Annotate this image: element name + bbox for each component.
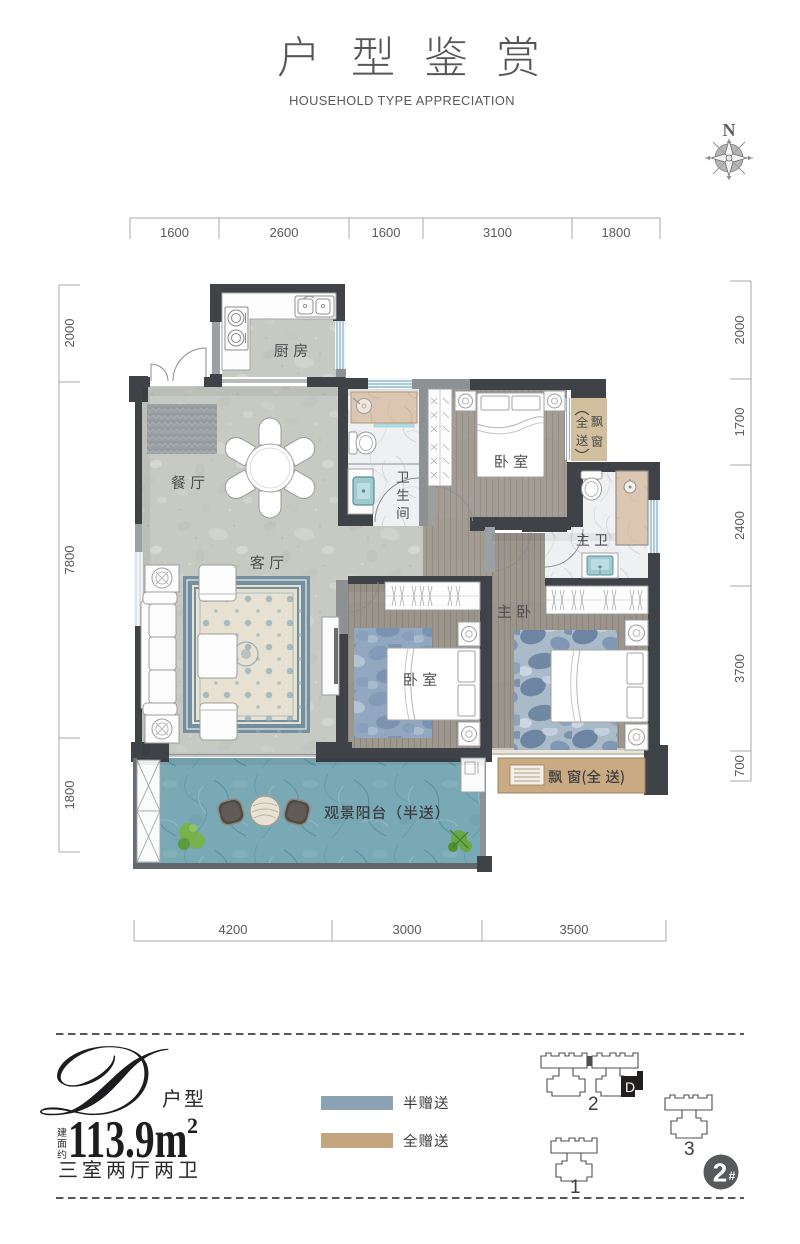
svg-text:#: # <box>729 1169 736 1183</box>
svg-text:1800: 1800 <box>602 225 631 240</box>
svg-text:700: 700 <box>732 755 747 777</box>
svg-text:3: 3 <box>684 1139 695 1160</box>
svg-text:2: 2 <box>713 1158 727 1188</box>
svg-text:2000: 2000 <box>62 319 77 348</box>
svg-text:2: 2 <box>187 1113 198 1138</box>
svg-text:N: N <box>723 120 736 140</box>
svg-text:1: 1 <box>570 1177 581 1198</box>
svg-text:7800: 7800 <box>62 546 77 575</box>
svg-text:3100: 3100 <box>483 225 512 240</box>
svg-text:HOUSEHOLD TYPE APPRECIATION: HOUSEHOLD TYPE APPRECIATION <box>289 93 515 108</box>
svg-text:D: D <box>625 1079 635 1095</box>
svg-text:113.9m: 113.9m <box>68 1111 188 1170</box>
svg-text:4200: 4200 <box>219 922 248 937</box>
svg-text:2: 2 <box>588 1094 599 1115</box>
svg-text:2000: 2000 <box>732 316 747 345</box>
svg-text:3500: 3500 <box>560 922 589 937</box>
svg-text:3000: 3000 <box>393 922 422 937</box>
svg-text:1600: 1600 <box>160 225 189 240</box>
svg-text:2400: 2400 <box>732 511 747 540</box>
svg-text:1600: 1600 <box>372 225 401 240</box>
svg-text:1700: 1700 <box>732 408 747 437</box>
svg-text:1800: 1800 <box>62 781 77 810</box>
svg-text:3700: 3700 <box>732 654 747 683</box>
svg-text:2600: 2600 <box>270 225 299 240</box>
